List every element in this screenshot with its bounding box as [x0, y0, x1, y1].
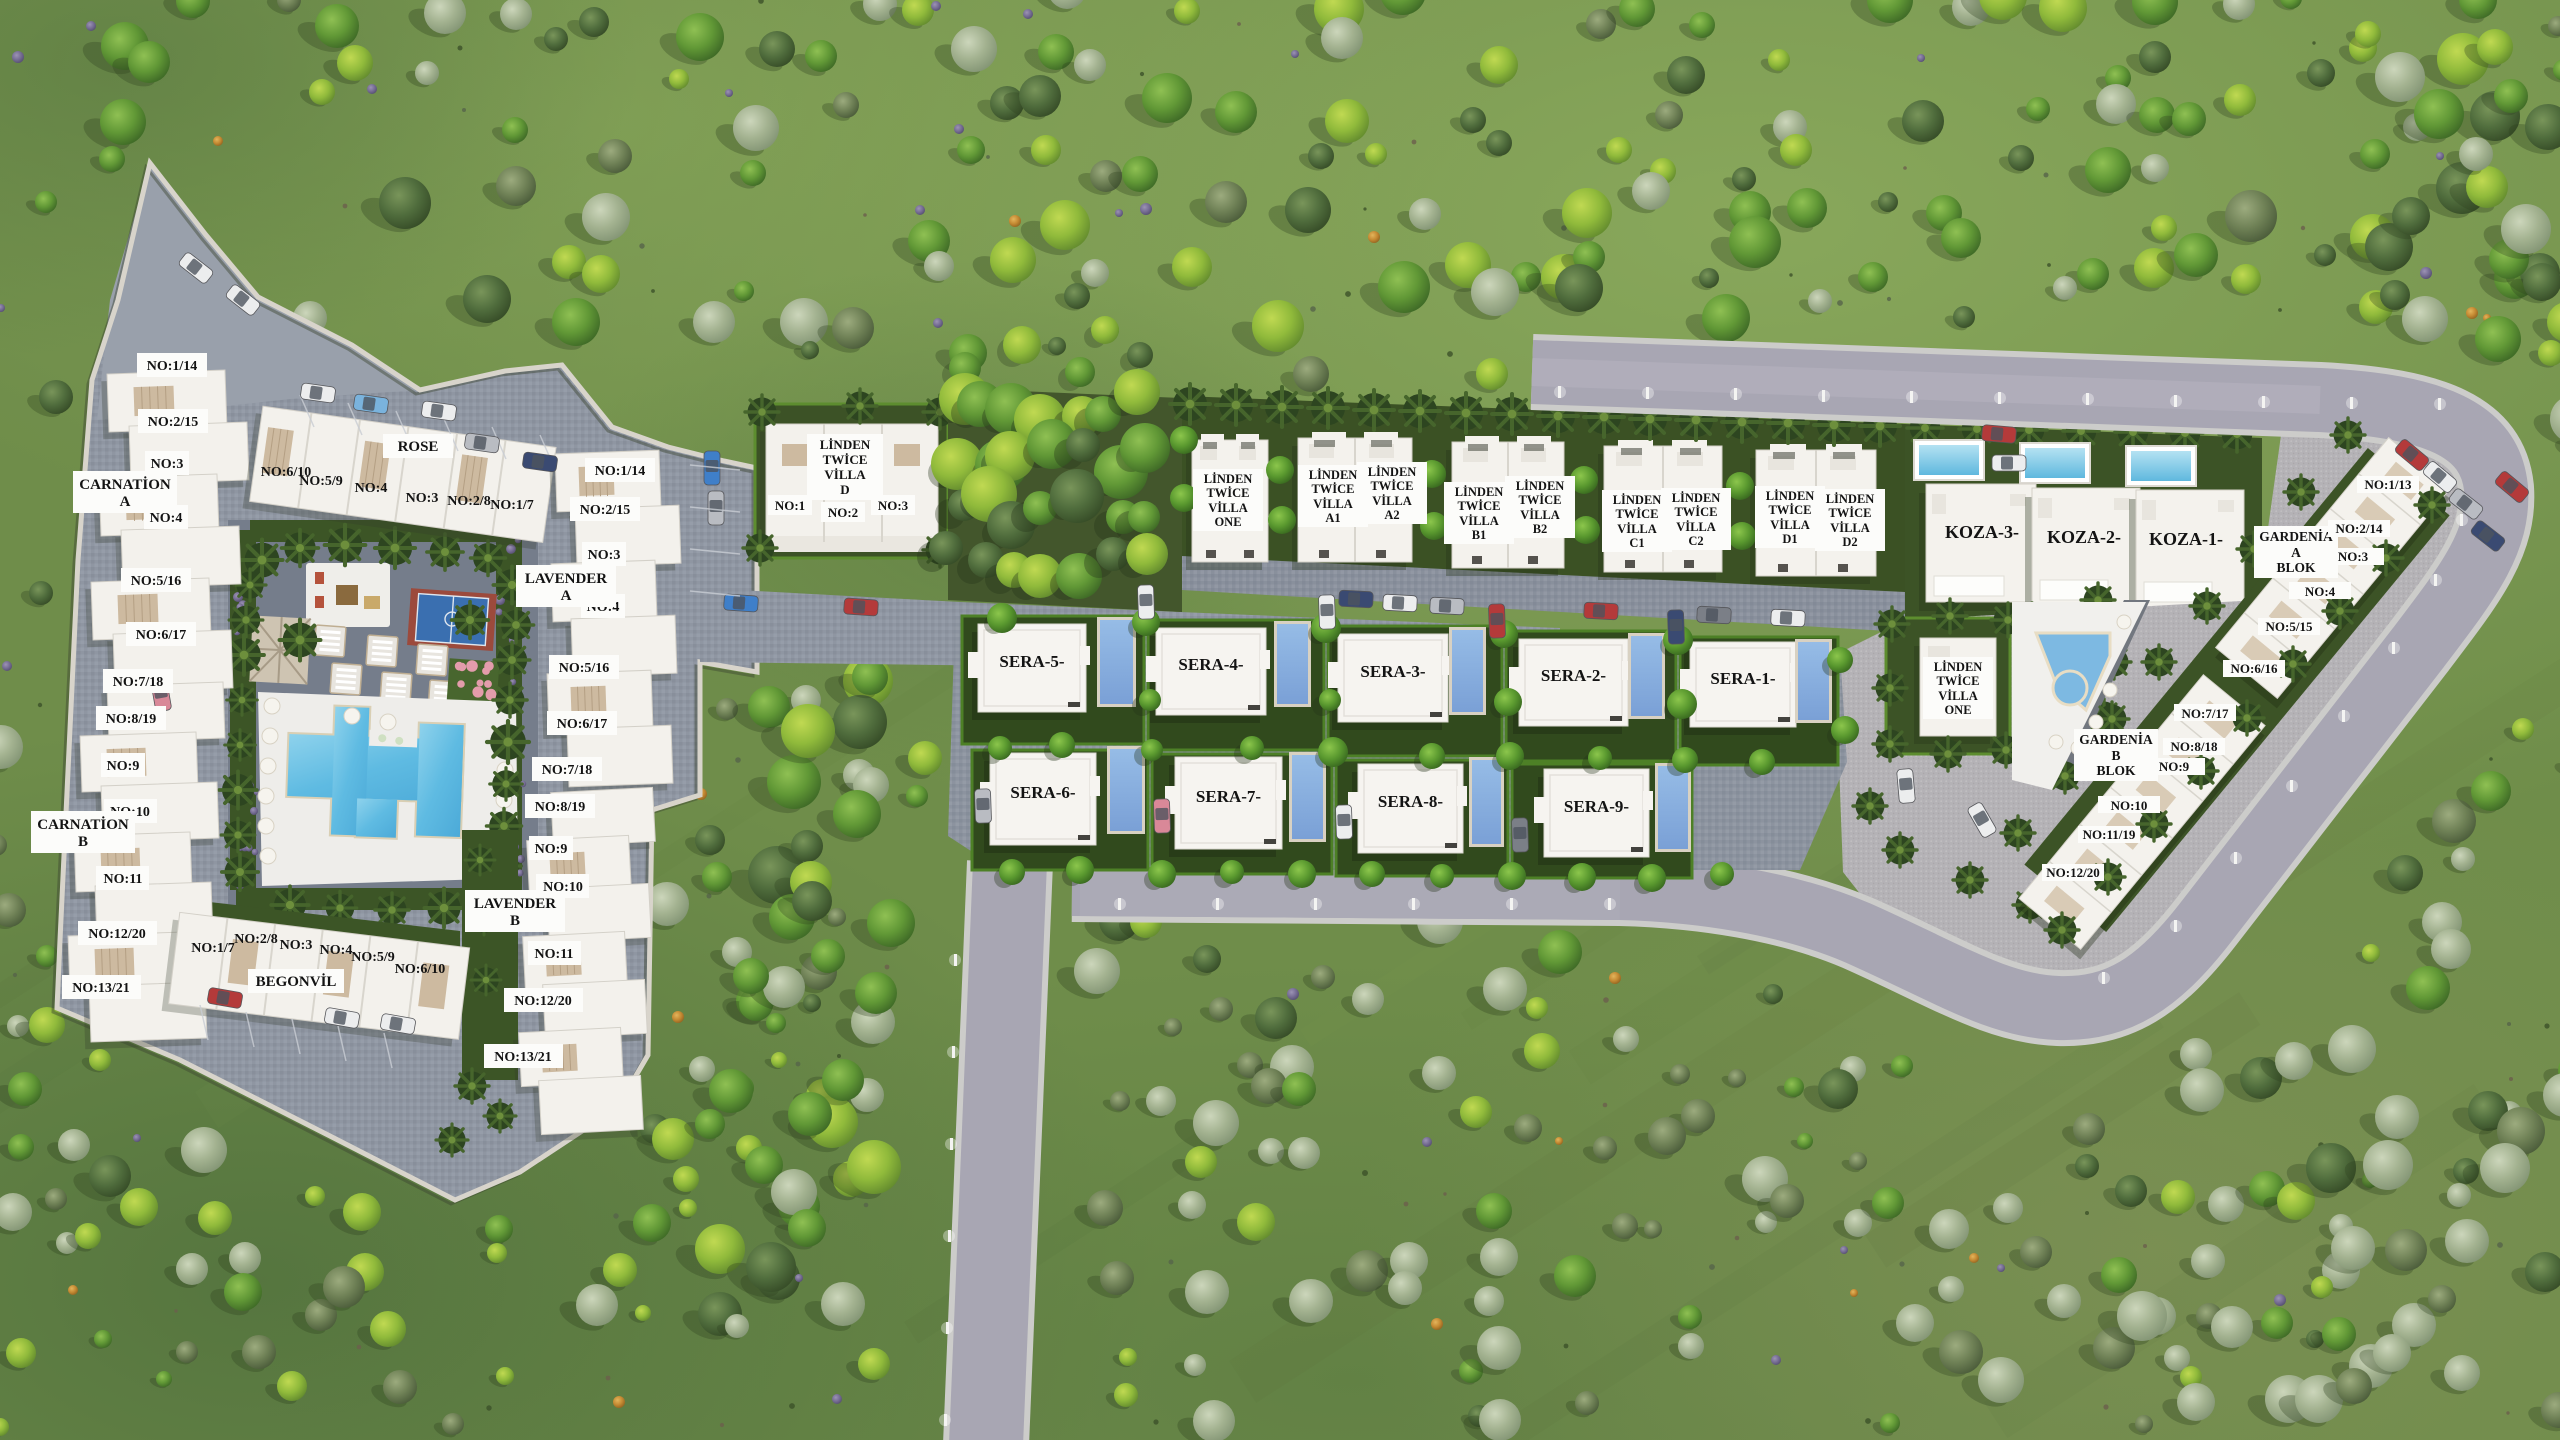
svg-text:NO:2/8: NO:2/8	[234, 932, 278, 947]
svg-text:BLOK: BLOK	[2276, 560, 2316, 575]
svg-text:NO:5/16: NO:5/16	[559, 661, 610, 676]
svg-text:NO:7/17: NO:7/17	[2182, 706, 2229, 721]
svg-text:TWİCE: TWİCE	[1936, 674, 1979, 688]
svg-text:KOZA-2-: KOZA-2-	[2047, 527, 2121, 547]
svg-text:NO:6/16: NO:6/16	[2231, 661, 2278, 676]
svg-text:NO:4: NO:4	[320, 943, 353, 958]
svg-text:SERA-3-: SERA-3-	[1360, 662, 1426, 681]
svg-text:ONE: ONE	[1944, 703, 1971, 717]
svg-text:NO:2/15: NO:2/15	[148, 415, 199, 430]
svg-text:TWİCE: TWİCE	[1674, 505, 1717, 519]
svg-text:NO:3: NO:3	[878, 498, 909, 513]
svg-text:VİLLA: VİLLA	[1676, 520, 1716, 534]
svg-text:SERA-2-: SERA-2-	[1541, 666, 1607, 685]
svg-text:D: D	[840, 482, 849, 497]
svg-text:NO:2/8: NO:2/8	[447, 494, 491, 509]
svg-text:B: B	[78, 834, 88, 850]
svg-text:NO:1/7: NO:1/7	[490, 498, 534, 513]
svg-text:NO:1/7: NO:1/7	[191, 941, 235, 956]
svg-text:NO:10: NO:10	[543, 880, 583, 895]
svg-text:LİNDEN: LİNDEN	[1672, 491, 1721, 505]
svg-text:LİNDEN: LİNDEN	[1934, 660, 1983, 674]
svg-text:TWİCE: TWİCE	[1370, 479, 1413, 493]
svg-text:LİNDEN: LİNDEN	[1613, 493, 1662, 507]
svg-text:NO:5/9: NO:5/9	[351, 950, 395, 965]
svg-text:NO:2/14: NO:2/14	[2336, 521, 2383, 536]
svg-text:SERA-5-: SERA-5-	[999, 652, 1065, 671]
svg-text:NO:4: NO:4	[2305, 584, 2336, 599]
svg-text:SERA-4-: SERA-4-	[1178, 655, 1244, 674]
svg-text:LİNDEN: LİNDEN	[1204, 472, 1253, 486]
svg-text:BLOK: BLOK	[2096, 763, 2136, 778]
svg-text:A1: A1	[1325, 511, 1340, 525]
svg-text:NO:7/18: NO:7/18	[542, 763, 593, 778]
svg-text:NO:4: NO:4	[150, 511, 183, 526]
svg-text:NO:2/15: NO:2/15	[580, 503, 631, 518]
svg-text:NO:4: NO:4	[355, 481, 388, 496]
svg-text:VİLLA: VİLLA	[1830, 521, 1870, 535]
svg-text:D2: D2	[1842, 535, 1857, 549]
svg-text:LİNDEN: LİNDEN	[1766, 489, 1815, 503]
svg-text:VİLLA: VİLLA	[1617, 522, 1657, 536]
svg-text:TWİCE: TWİCE	[1206, 486, 1249, 500]
svg-text:LİNDEN: LİNDEN	[1309, 468, 1358, 482]
svg-text:B: B	[2111, 748, 2120, 763]
svg-text:NO:9: NO:9	[2159, 759, 2190, 774]
svg-text:NO:12/20: NO:12/20	[514, 994, 572, 1009]
svg-text:SERA-9-: SERA-9-	[1564, 797, 1630, 816]
svg-text:SERA-6-: SERA-6-	[1010, 783, 1076, 802]
svg-text:D1: D1	[1782, 532, 1797, 546]
svg-text:NO:11: NO:11	[104, 872, 143, 887]
svg-text:NO:3: NO:3	[280, 938, 313, 953]
svg-text:SERA-7-: SERA-7-	[1196, 787, 1262, 806]
svg-text:NO:6/17: NO:6/17	[557, 717, 608, 732]
svg-text:VİLLA: VİLLA	[1372, 494, 1412, 508]
svg-text:VİLLA: VİLLA	[1520, 508, 1560, 522]
svg-text:TWİCE: TWİCE	[1768, 503, 1811, 517]
svg-text:VİLLA: VİLLA	[824, 467, 866, 482]
svg-text:TWİCE: TWİCE	[1518, 493, 1561, 507]
svg-text:NO:3: NO:3	[588, 548, 621, 563]
svg-text:NO:12/20: NO:12/20	[88, 927, 146, 942]
svg-text:KOZA-1-: KOZA-1-	[2149, 529, 2223, 549]
svg-text:LİNDEN: LİNDEN	[1368, 465, 1417, 479]
svg-text:GARDENİA: GARDENİA	[2079, 732, 2153, 747]
svg-text:NO:5/15: NO:5/15	[2266, 619, 2313, 634]
svg-text:NO:8/19: NO:8/19	[535, 800, 586, 815]
svg-text:NO:6/17: NO:6/17	[136, 628, 187, 643]
svg-text:TWİCE: TWİCE	[1615, 507, 1658, 521]
svg-text:B1: B1	[1472, 528, 1487, 542]
svg-text:VİLLA: VİLLA	[1208, 501, 1248, 515]
svg-text:NO:3: NO:3	[2338, 549, 2369, 564]
svg-text:LAVENDER: LAVENDER	[474, 896, 556, 912]
svg-text:NO:13/21: NO:13/21	[72, 981, 130, 996]
svg-text:NO:3: NO:3	[151, 457, 184, 472]
svg-text:VİLLA: VİLLA	[1938, 689, 1978, 703]
svg-text:NO:8/19: NO:8/19	[106, 712, 157, 727]
svg-text:LİNDEN: LİNDEN	[1826, 492, 1875, 506]
svg-text:NO:10: NO:10	[2111, 798, 2148, 813]
svg-text:LİNDEN: LİNDEN	[1455, 485, 1504, 499]
svg-text:TWİCE: TWİCE	[1311, 482, 1354, 496]
svg-text:NO:11: NO:11	[535, 947, 574, 962]
svg-text:NO:7/18: NO:7/18	[113, 675, 164, 690]
svg-text:NO:11/19: NO:11/19	[2083, 827, 2136, 842]
svg-text:TWİCE: TWİCE	[823, 452, 868, 467]
svg-text:NO:8/18: NO:8/18	[2171, 739, 2218, 754]
svg-text:A: A	[2291, 545, 2301, 560]
svg-text:NO:1/14: NO:1/14	[595, 464, 646, 479]
svg-text:LAVENDER: LAVENDER	[525, 571, 607, 587]
svg-text:GARDENİA: GARDENİA	[2259, 529, 2333, 544]
svg-text:NO:6/10: NO:6/10	[395, 962, 446, 977]
svg-text:NO:5/9: NO:5/9	[299, 474, 343, 489]
svg-text:C1: C1	[1629, 536, 1644, 550]
svg-text:NO:2: NO:2	[828, 505, 858, 520]
svg-text:NO:1/13: NO:1/13	[2365, 477, 2412, 492]
svg-text:B: B	[510, 913, 520, 929]
svg-text:NO:5/16: NO:5/16	[131, 574, 182, 589]
svg-text:SERA-1-: SERA-1-	[1710, 669, 1776, 688]
svg-text:A2: A2	[1384, 508, 1399, 522]
svg-text:CARNATİON: CARNATİON	[79, 476, 171, 493]
svg-text:NO:9: NO:9	[107, 759, 140, 774]
svg-text:KOZA-3-: KOZA-3-	[1945, 522, 2019, 542]
svg-text:ROSE: ROSE	[398, 439, 439, 455]
svg-text:NO:1/14: NO:1/14	[147, 359, 198, 374]
svg-text:BEGONVİL: BEGONVİL	[256, 973, 337, 990]
svg-text:NO:3: NO:3	[406, 491, 439, 506]
svg-text:NO:1: NO:1	[775, 498, 805, 513]
svg-text:A: A	[561, 588, 572, 604]
svg-text:C2: C2	[1688, 534, 1703, 548]
svg-text:NO:13/21: NO:13/21	[494, 1050, 552, 1065]
svg-text:VİLLA: VİLLA	[1459, 514, 1499, 528]
svg-text:TWİCE: TWİCE	[1828, 506, 1871, 520]
svg-text:TWİCE: TWİCE	[1457, 499, 1500, 513]
svg-text:LİNDEN: LİNDEN	[820, 437, 871, 452]
svg-text:SERA-8-: SERA-8-	[1378, 792, 1444, 811]
svg-text:VİLLA: VİLLA	[1313, 497, 1353, 511]
svg-text:B2: B2	[1533, 522, 1548, 536]
svg-text:NO:12/20: NO:12/20	[2046, 865, 2099, 880]
svg-text:NO:9: NO:9	[535, 842, 568, 857]
svg-text:CARNATİON: CARNATİON	[37, 816, 129, 833]
svg-text:VİLLA: VİLLA	[1770, 518, 1810, 532]
svg-text:LİNDEN: LİNDEN	[1516, 479, 1565, 493]
svg-text:ONE: ONE	[1214, 515, 1241, 529]
svg-text:A: A	[120, 494, 131, 510]
